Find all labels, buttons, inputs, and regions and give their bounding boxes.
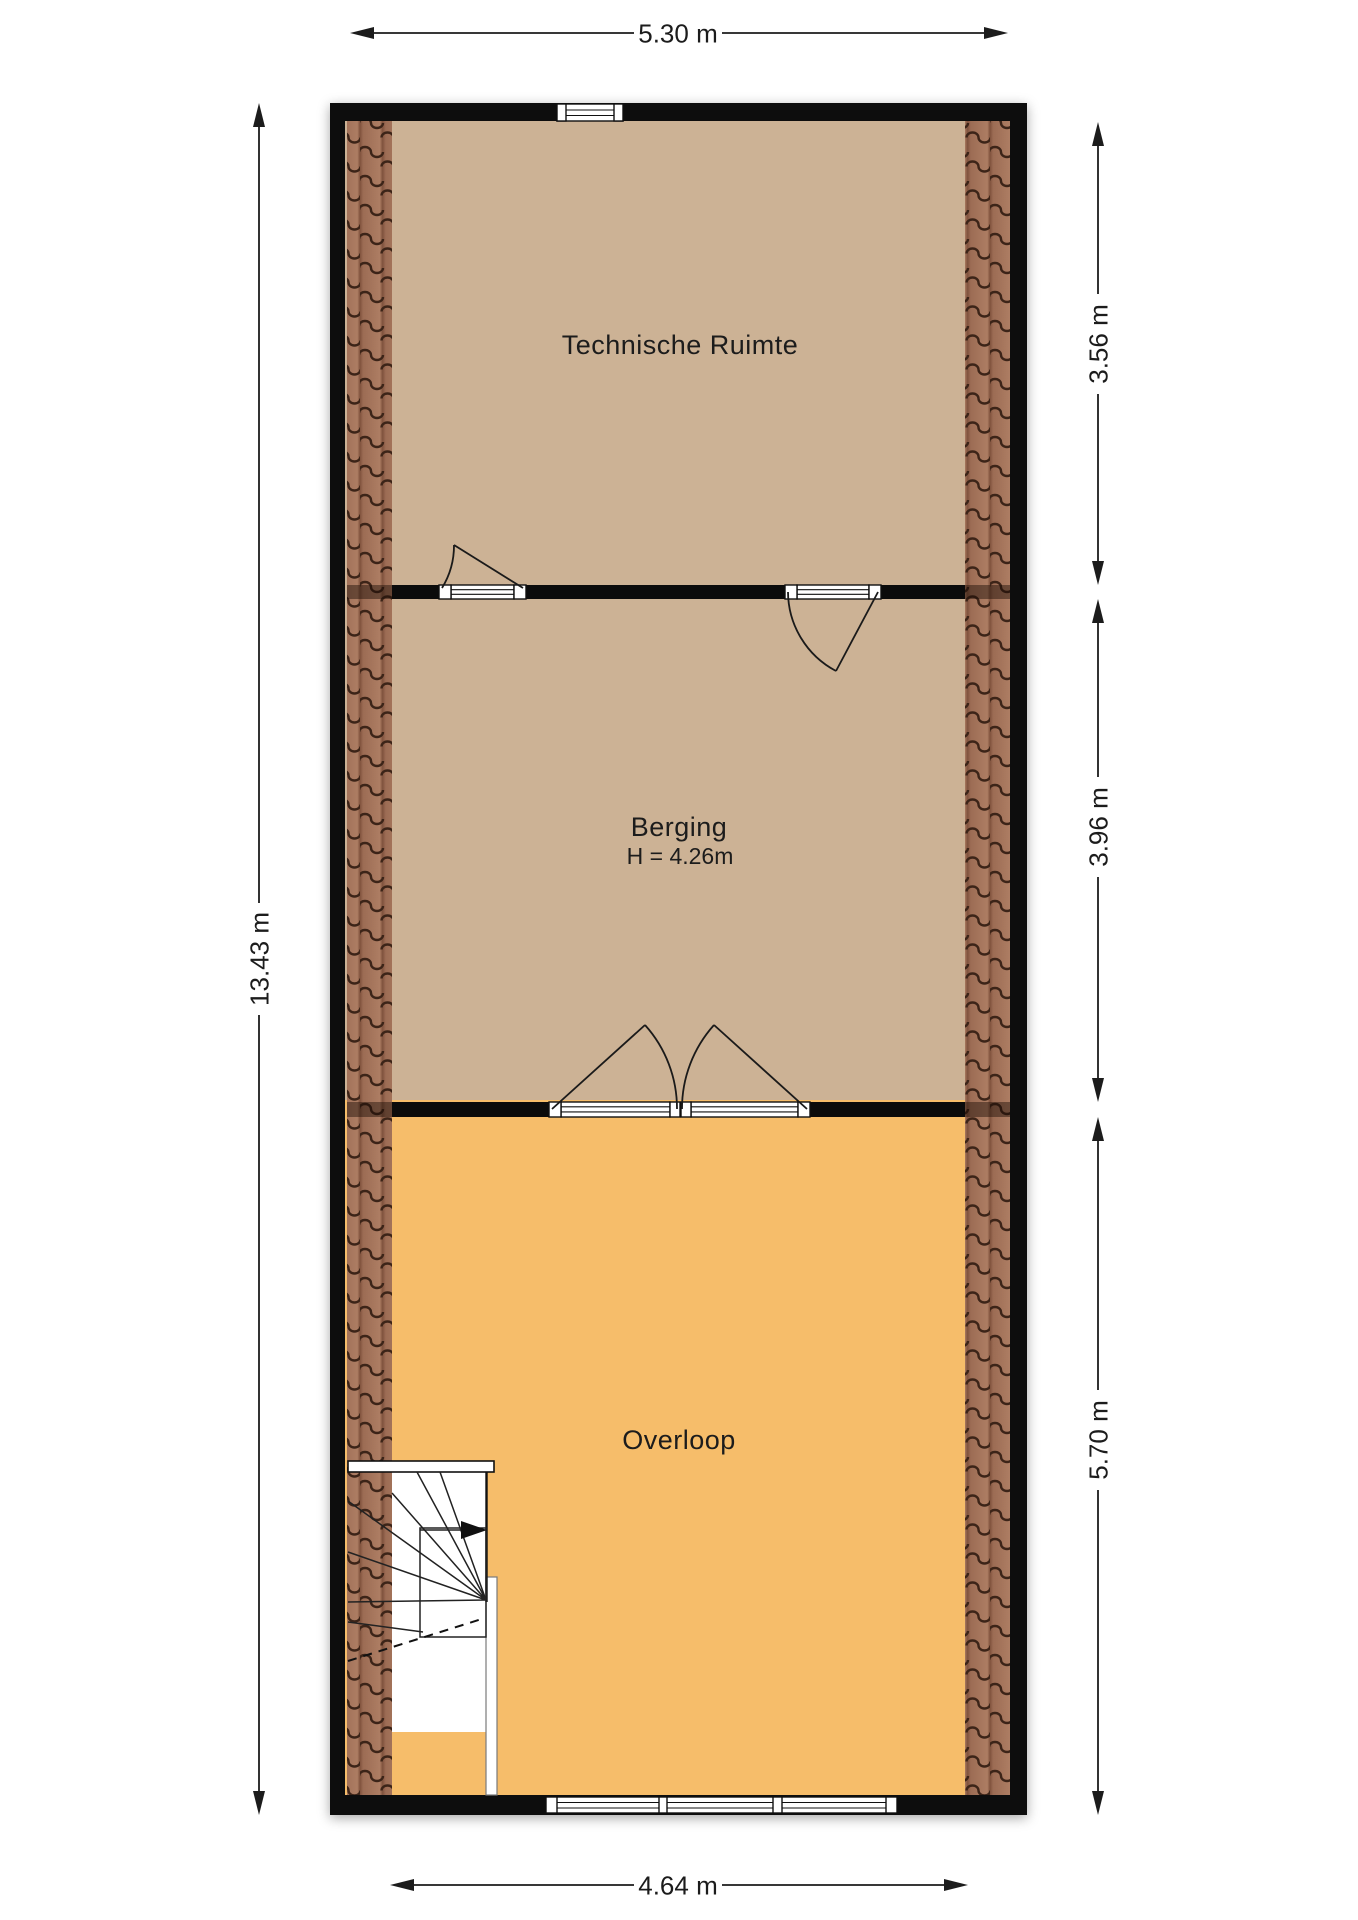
dimension-top-label: 5.30 m (638, 19, 718, 49)
arrow-down-icon (253, 1791, 265, 1815)
window-bottom (546, 1797, 897, 1813)
room-fill-technische-berging (345, 121, 1010, 1109)
wall-segment (392, 1102, 549, 1117)
dimension-right-top-label: 3.56 m (1084, 304, 1114, 384)
room-label-technische-ruimte: Technische Ruimte (562, 330, 799, 360)
stair-side-wall (486, 1577, 497, 1795)
stair-top-landing-edge (348, 1461, 494, 1472)
wall-shadow-over-tiles (347, 1102, 392, 1117)
room-label-berging: Berging (631, 812, 728, 842)
stair-well (392, 1462, 486, 1732)
arrow-left-icon (350, 27, 374, 39)
window-top (557, 104, 623, 121)
arrow-right-icon (984, 27, 1008, 39)
dimension-top: 5.30 m (350, 19, 1008, 49)
dimension-right-bottom: 5.70 m (1084, 1117, 1114, 1815)
wall-segment (526, 585, 785, 599)
arrow-up-icon (1092, 1117, 1104, 1141)
dimension-right-middle-label: 3.96 m (1084, 787, 1114, 867)
wall-segment (881, 585, 965, 599)
dimension-left: 13.43 m (245, 103, 275, 1815)
room-label-overloop: Overloop (622, 1425, 736, 1455)
floor-plan-page: Technische Ruimte Berging H = 4.26m Over… (0, 0, 1358, 1920)
arrow-down-icon (1092, 561, 1104, 585)
dimension-right-bottom-label: 5.70 m (1084, 1400, 1114, 1480)
arrow-up-icon (1092, 122, 1104, 146)
wall-shadow-over-tiles (965, 585, 1010, 599)
wall-shadow-over-tiles (965, 1102, 1010, 1117)
arrow-down-icon (1092, 1078, 1104, 1102)
wall-segment (392, 585, 439, 599)
wall-segment (810, 1102, 965, 1117)
arrow-up-icon (253, 103, 265, 127)
arrow-up-icon (1092, 599, 1104, 623)
tile-strip-right (965, 121, 1010, 1795)
tile-strip-left (347, 121, 392, 1795)
dimension-bottom: 4.64 m (390, 1871, 968, 1901)
arrow-down-icon (1092, 1791, 1104, 1815)
arrow-left-icon (390, 1879, 414, 1891)
dimension-left-label: 13.43 m (245, 912, 275, 1006)
floor-plan-canvas: Technische Ruimte Berging H = 4.26m Over… (0, 0, 1358, 1920)
dimension-bottom-label: 4.64 m (638, 1871, 718, 1901)
dimension-right-middle: 3.96 m (1084, 599, 1114, 1102)
dimension-right-top: 3.56 m (1084, 122, 1114, 585)
wall-shadow-over-tiles (347, 585, 392, 599)
room-height-note-berging: H = 4.26m (627, 843, 734, 869)
arrow-right-icon (944, 1879, 968, 1891)
